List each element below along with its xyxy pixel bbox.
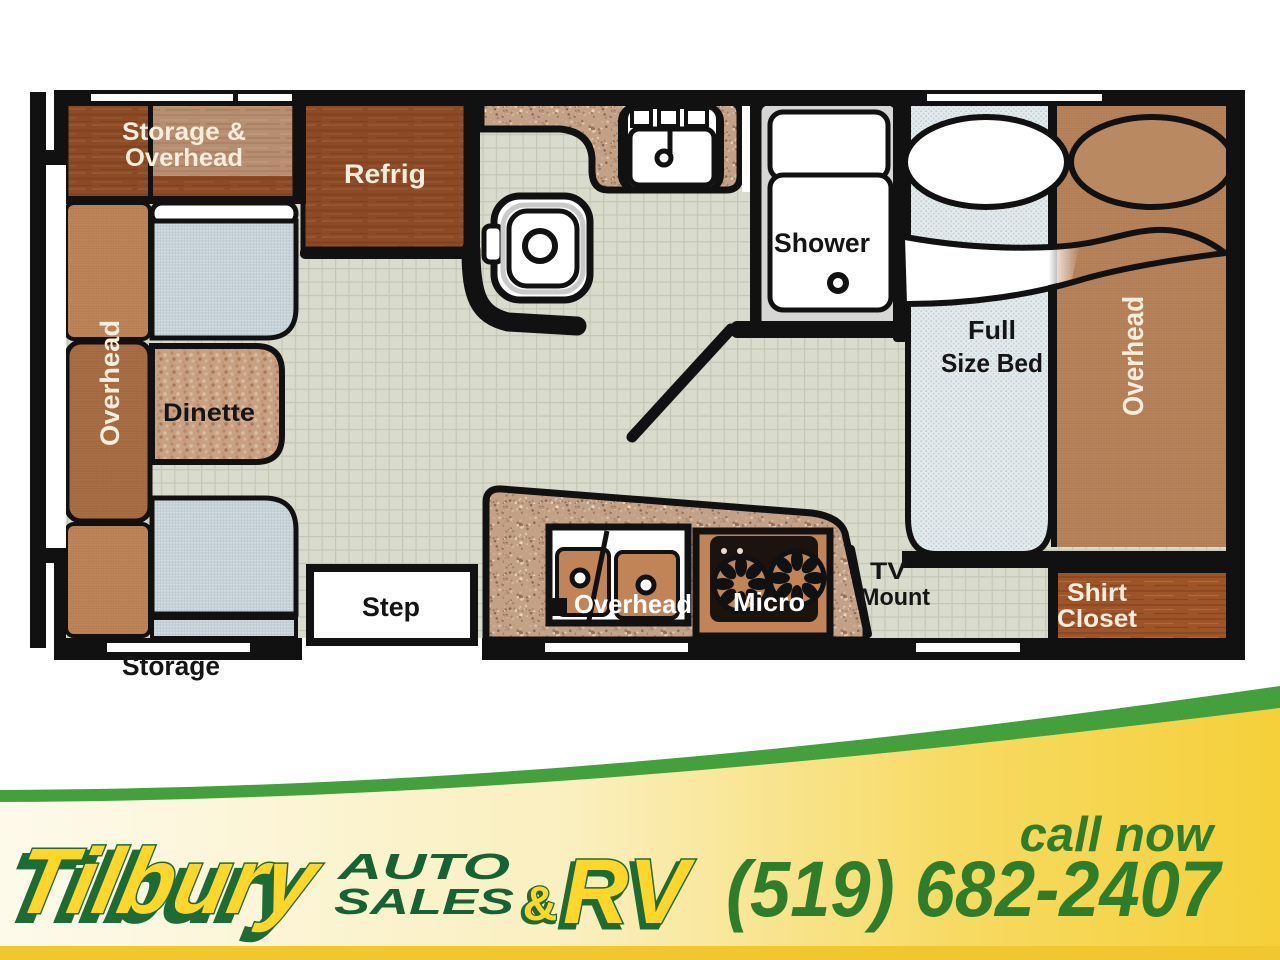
svg-text:Overhead: Overhead: [95, 320, 125, 446]
svg-text:Tilbury: Tilbury: [7, 829, 332, 933]
svg-text:Shirt: Shirt: [1067, 579, 1128, 607]
svg-text:Storage &: Storage &: [122, 118, 246, 146]
svg-text:(519) 682-2407: (519) 682-2407: [726, 844, 1224, 933]
svg-text:Mount: Mount: [860, 584, 930, 611]
svg-text:Refrig: Refrig: [344, 159, 426, 189]
svg-text:Full: Full: [968, 315, 1016, 345]
svg-text:SALES: SALES: [334, 881, 514, 922]
svg-text:RV: RV: [563, 841, 696, 943]
svg-text:Overhead: Overhead: [574, 589, 692, 619]
svg-text:Closet: Closet: [1057, 605, 1138, 633]
svg-text:Step: Step: [362, 592, 420, 622]
svg-text:Overhead: Overhead: [1118, 296, 1150, 416]
svg-text:TV: TV: [870, 558, 906, 585]
svg-text:Overhead: Overhead: [125, 144, 243, 172]
svg-text:&: &: [523, 878, 558, 931]
svg-text:Shower: Shower: [774, 228, 870, 258]
svg-text:Micro: Micro: [733, 587, 805, 617]
svg-text:Size Bed: Size Bed: [941, 348, 1043, 378]
svg-text:Dinette: Dinette: [163, 399, 255, 427]
svg-text:Storage: Storage: [122, 651, 220, 681]
